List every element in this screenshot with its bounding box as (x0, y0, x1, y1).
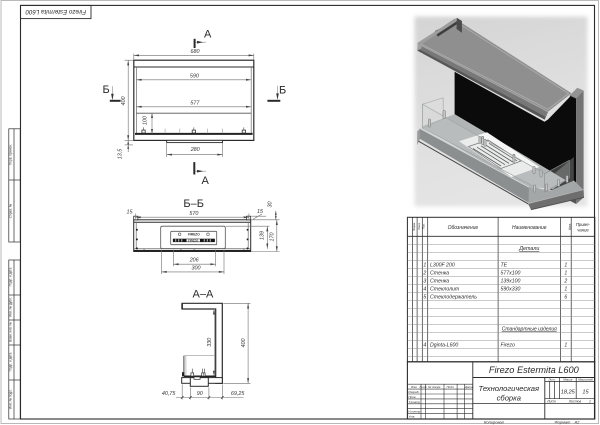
svg-text:Б: Б (279, 85, 286, 97)
svg-text:Стенка: Стенка (430, 270, 449, 276)
svg-text:577х100: 577х100 (501, 270, 521, 276)
svg-text:Firezo: Firezo (501, 342, 516, 348)
svg-text:13,5: 13,5 (118, 148, 124, 159)
svg-text:15: 15 (582, 390, 589, 396)
svg-text:Лит.: Лит. (547, 377, 555, 381)
svg-text:Пров.: Пров. (408, 395, 416, 399)
svg-text:69,25: 69,25 (231, 391, 245, 397)
svg-text:Firezo Estermita L600: Firezo Estermita L600 (489, 365, 580, 375)
svg-text:15: 15 (257, 209, 264, 215)
svg-text:Подп. и дата: Подп. и дата (9, 352, 13, 371)
svg-text:FIREZO: FIREZO (188, 233, 200, 237)
svg-text:Утв.: Утв. (408, 415, 415, 419)
svg-text:1: 1 (564, 262, 567, 268)
svg-text:2: 2 (422, 270, 426, 276)
svg-text:280: 280 (190, 147, 200, 153)
svg-text:1: 1 (564, 286, 567, 292)
svg-text:А2: А2 (574, 419, 581, 424)
svg-text:Dginta-L600: Dginta-L600 (430, 342, 458, 348)
svg-text:1: 1 (564, 342, 567, 348)
svg-text:4: 4 (423, 286, 426, 292)
svg-text:206: 206 (189, 258, 199, 264)
svg-text:5: 5 (423, 294, 426, 300)
svg-text:Firezo Estermita L600: Firezo Estermita L600 (25, 8, 86, 15)
svg-text:Копировал: Копировал (484, 419, 505, 424)
svg-text:Масштаб: Масштаб (578, 377, 593, 381)
svg-text:90: 90 (197, 391, 203, 397)
svg-text:Зона: Зона (417, 223, 421, 230)
svg-text:Технологическая: Технологическая (479, 384, 540, 393)
svg-text:Дата: Дата (464, 385, 473, 389)
svg-text:Подп.: Подп. (447, 385, 455, 389)
svg-text:Масса: Масса (563, 377, 572, 381)
svg-text:чание: чание (577, 228, 589, 233)
svg-text:590х330: 590х330 (501, 286, 521, 292)
svg-text:1: 1 (423, 262, 426, 268)
svg-text:18,25: 18,25 (561, 390, 576, 396)
svg-text:Изм.: Изм. (411, 385, 418, 389)
svg-text:3: 3 (423, 278, 426, 284)
svg-text:100: 100 (143, 116, 149, 125)
svg-text:4: 4 (423, 342, 426, 348)
svg-text:Т.контр.: Т.контр. (408, 400, 420, 404)
svg-text:Лист: Лист (418, 385, 427, 389)
svg-text:Стенка: Стенка (430, 278, 449, 284)
svg-text:15: 15 (127, 210, 134, 216)
svg-text:139х100: 139х100 (501, 278, 521, 284)
svg-text:№ докум.: № докум. (428, 385, 441, 389)
svg-text:40,75: 40,75 (162, 391, 176, 397)
svg-text:Лист: Лист (546, 400, 556, 404)
svg-text:Кол.: Кол. (568, 223, 572, 230)
svg-text:1: 1 (564, 270, 567, 276)
svg-text:Обозначение: Обозначение (448, 225, 479, 231)
svg-text:577: 577 (190, 100, 200, 106)
svg-text:Наименование: Наименование (512, 225, 547, 231)
svg-text:400: 400 (241, 339, 247, 348)
svg-text:Листов: Листов (568, 400, 582, 404)
svg-text:300: 300 (192, 265, 201, 271)
svg-text:Взам. инв. №: Взам. инв. № (9, 322, 13, 342)
svg-text:А: А (202, 175, 210, 187)
svg-text:Детали: Детали (518, 246, 539, 252)
svg-text:А: А (204, 29, 212, 41)
svg-text:Инв. № дубл.: Инв. № дубл. (9, 297, 13, 317)
svg-text:А–А: А–А (193, 289, 214, 301)
svg-text:1: 1 (589, 400, 591, 404)
svg-text:330: 330 (207, 338, 213, 347)
svg-text:Формат: Формат (555, 419, 572, 424)
svg-text:30: 30 (268, 202, 274, 208)
svg-text:680: 680 (191, 49, 200, 55)
svg-text:Форм.: Форм. (412, 222, 416, 231)
svg-text:400: 400 (121, 97, 127, 106)
svg-text:Н.контр.: Н.контр. (408, 410, 421, 414)
svg-text:L300F 200: L300F 200 (430, 262, 455, 268)
svg-text:Разраб.: Разраб. (408, 390, 419, 394)
svg-text:Стандартные изделия: Стандартные изделия (502, 326, 557, 332)
svg-text:Приме-: Приме- (576, 222, 591, 227)
svg-text:Подп. и дата: Подп. и дата (9, 267, 13, 286)
svg-text:Справ. №: Справ. № (9, 203, 13, 218)
svg-text:590: 590 (190, 73, 199, 79)
svg-text:170: 170 (270, 233, 276, 242)
svg-text:139: 139 (259, 231, 265, 240)
svg-text:Инв. № подл.: Инв. № подл. (9, 389, 13, 409)
svg-text:Стеклодержатель: Стеклодержатель (430, 294, 477, 300)
svg-text:FIREZO: FIREZO (188, 239, 198, 242)
svg-text:570: 570 (189, 211, 198, 217)
svg-text:ТЕ: ТЕ (501, 262, 508, 268)
svg-text:2: 2 (563, 278, 567, 284)
svg-text:сборка: сборка (497, 394, 521, 403)
svg-text:Стеклолит: Стеклолит (430, 286, 460, 292)
svg-text:Б: Б (103, 84, 110, 96)
svg-text:Перв. примен.: Перв. примен. (9, 144, 13, 165)
svg-text:Б–Б: Б–Б (183, 198, 204, 210)
svg-text:6: 6 (564, 294, 567, 300)
svg-text:Поз.: Поз. (422, 223, 426, 229)
